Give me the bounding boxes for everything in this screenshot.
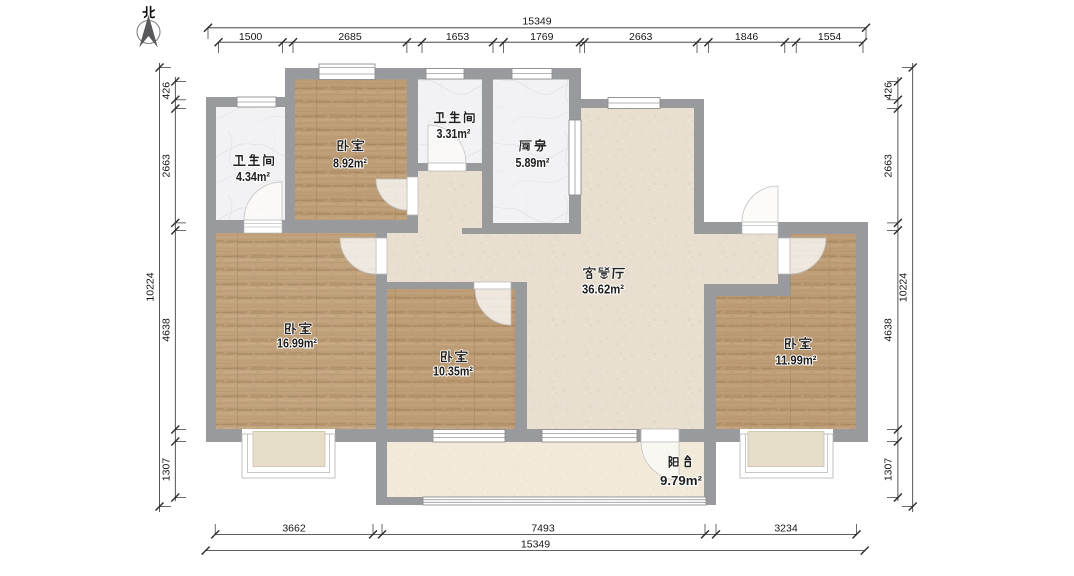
svg-text:8.92m²: 8.92m² bbox=[333, 157, 367, 171]
svg-text:4638: 4638 bbox=[883, 318, 895, 342]
svg-text:1653: 1653 bbox=[446, 31, 470, 43]
svg-text:2663: 2663 bbox=[160, 154, 172, 178]
svg-text:15349: 15349 bbox=[522, 16, 551, 28]
svg-text:11.99m²: 11.99m² bbox=[776, 354, 817, 368]
svg-text:16.99m²: 16.99m² bbox=[277, 337, 317, 351]
svg-text:426: 426 bbox=[883, 82, 895, 100]
svg-text:10224: 10224 bbox=[898, 273, 910, 302]
svg-text:4.34m²: 4.34m² bbox=[236, 170, 270, 184]
svg-text:3662: 3662 bbox=[282, 522, 306, 534]
svg-text:2663: 2663 bbox=[629, 31, 653, 43]
svg-text:1307: 1307 bbox=[883, 458, 895, 482]
svg-text:2685: 2685 bbox=[338, 31, 362, 43]
svg-text:426: 426 bbox=[160, 82, 172, 100]
svg-text:15349: 15349 bbox=[521, 539, 550, 551]
svg-text:1769: 1769 bbox=[530, 31, 554, 43]
svg-text:7493: 7493 bbox=[531, 522, 555, 534]
svg-text:1554: 1554 bbox=[818, 31, 842, 43]
svg-text:4638: 4638 bbox=[160, 318, 172, 342]
svg-text:10224: 10224 bbox=[145, 272, 157, 301]
svg-text:3.31m²: 3.31m² bbox=[437, 127, 471, 141]
svg-text:36.62m²: 36.62m² bbox=[582, 283, 624, 297]
svg-text:1500: 1500 bbox=[239, 31, 263, 43]
svg-text:9.79m²: 9.79m² bbox=[660, 474, 702, 488]
svg-text:1846: 1846 bbox=[735, 31, 759, 43]
svg-text:3234: 3234 bbox=[774, 522, 798, 534]
svg-text:5.89m²: 5.89m² bbox=[516, 156, 550, 170]
svg-text:10.35m²: 10.35m² bbox=[433, 365, 473, 379]
svg-text:2663: 2663 bbox=[883, 154, 895, 178]
svg-text:1307: 1307 bbox=[160, 458, 172, 482]
